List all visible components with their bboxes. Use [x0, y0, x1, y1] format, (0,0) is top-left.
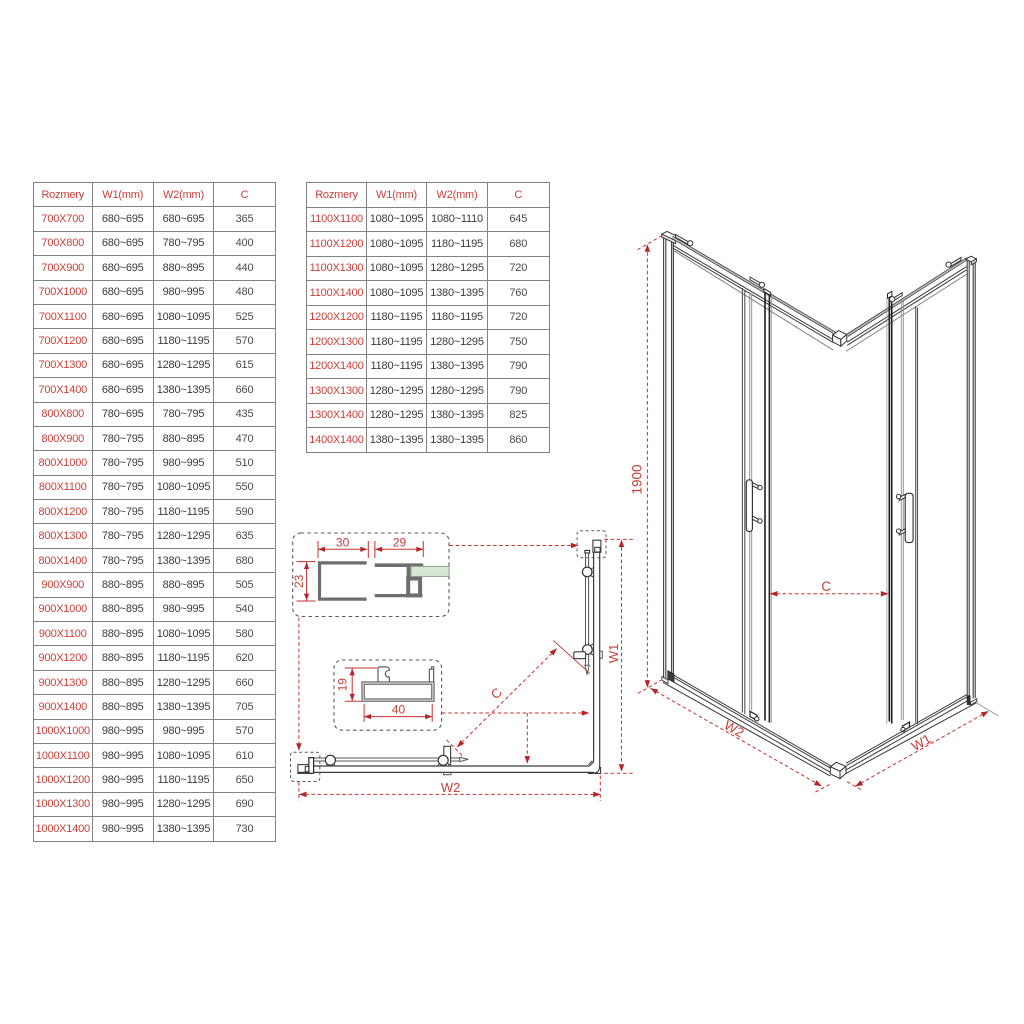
svg-text:W1: W1 [606, 644, 621, 664]
svg-text:30: 30 [336, 536, 350, 550]
svg-text:W1: W1 [909, 731, 934, 754]
svg-text:1900: 1900 [630, 464, 645, 494]
svg-text:W2: W2 [441, 780, 461, 795]
svg-text:W2: W2 [722, 717, 747, 740]
svg-text:29: 29 [393, 536, 407, 550]
svg-text:19: 19 [336, 678, 350, 692]
svg-text:C: C [488, 685, 505, 702]
svg-text:C: C [821, 579, 831, 594]
svg-text:23: 23 [292, 574, 306, 588]
svg-text:40: 40 [392, 703, 406, 717]
